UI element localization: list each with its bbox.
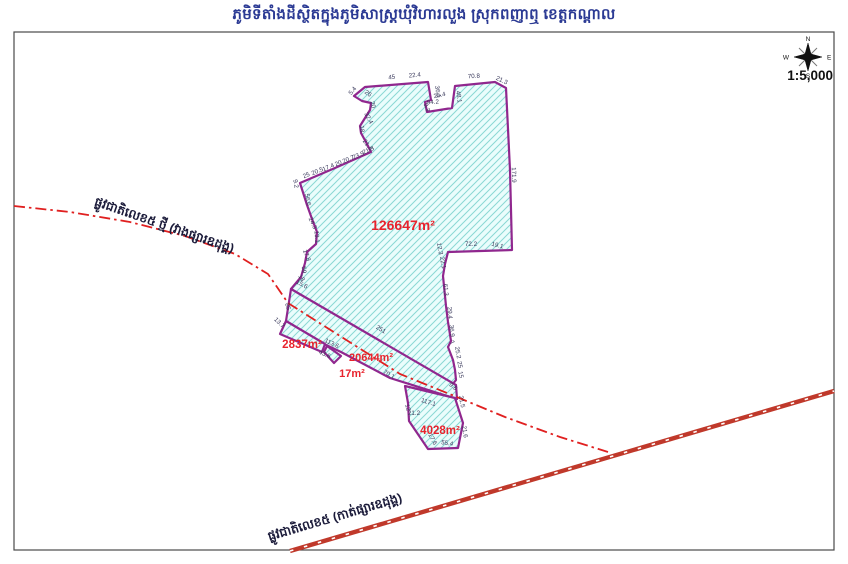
measurement-label: 94.2 (427, 99, 440, 107)
measurement-label: 61.3 (441, 284, 449, 297)
measurement-label: 72.2 (465, 241, 478, 248)
measurement-label: 36.9 (447, 325, 455, 338)
parcel-road-strip-area-label: 20644m² (349, 352, 393, 364)
compass-west-label: W (783, 55, 790, 62)
parcel-west-area-label: 2837m² (282, 339, 322, 351)
measurement-label: 18 (358, 125, 366, 133)
measurement-label: 171.9 (510, 167, 518, 183)
scale-label: 1:5,000 (787, 68, 833, 83)
measurement-label: 22.4 (408, 71, 421, 79)
measurement-label: 21.2 (408, 410, 421, 417)
measurement-label: 13.1 (312, 231, 320, 244)
compass-east-label: E (827, 55, 832, 62)
measurement-label: 70.8 (468, 73, 481, 81)
measurement-label: 59 (300, 266, 308, 274)
map-title: ភូមិទីតាំងដីស្ថិតក្នុងភូមិសាស្ត្រឃុំវិហា… (0, 5, 848, 27)
cadastral-map-page: ភូមិទីតាំងដីស្ថិតក្នុងភូមិសាស្ត្រឃុំវិហា… (0, 0, 848, 564)
parcel-south-area-label: 4028m² (420, 425, 460, 437)
parcel-main-area-label: 126647m² (371, 217, 435, 233)
map-canvas: 5.44522.436.125.49.394.248.170.821.3171.… (0, 0, 848, 564)
parcel-sliver-area-label: 17m² (339, 368, 365, 380)
compass-north-label: N (806, 36, 811, 43)
measurement-label: 29.4 (445, 307, 453, 320)
